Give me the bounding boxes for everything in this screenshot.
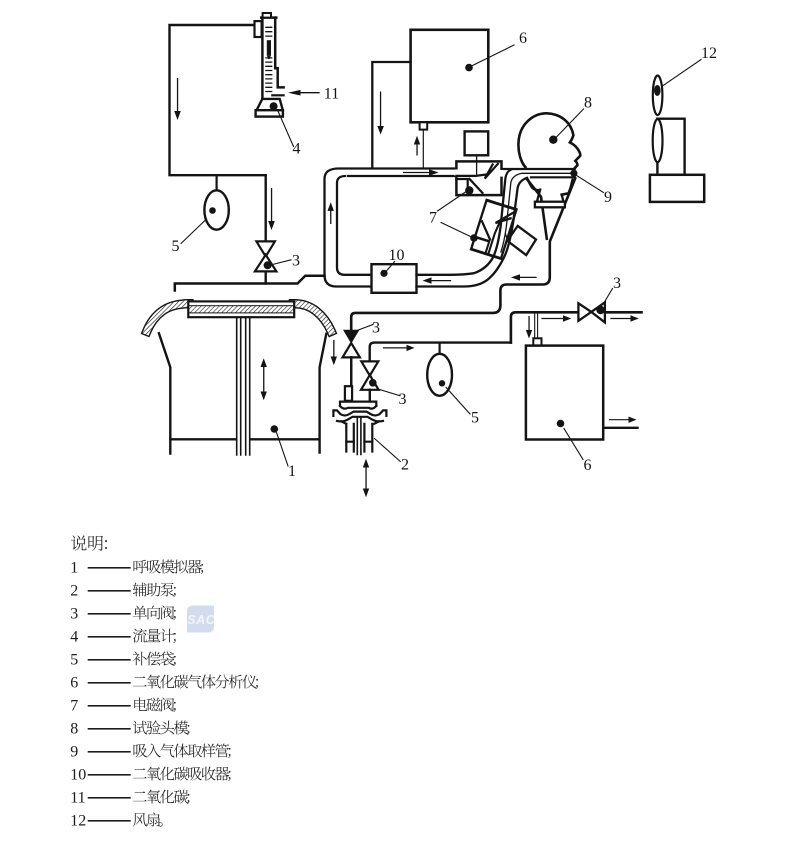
- svg-text:3: 3: [613, 275, 621, 292]
- svg-text:2: 2: [70, 582, 78, 599]
- svg-text:11: 11: [70, 789, 85, 806]
- svg-text:SAC: SAC: [187, 613, 216, 627]
- svg-text:9: 9: [604, 189, 612, 206]
- svg-text:3: 3: [372, 320, 380, 337]
- svg-text:9: 9: [70, 743, 78, 760]
- svg-text:12: 12: [701, 45, 717, 62]
- svg-text:5: 5: [70, 651, 78, 668]
- svg-text:10: 10: [389, 247, 405, 264]
- svg-text:3: 3: [70, 605, 78, 622]
- svg-text:7: 7: [70, 697, 78, 714]
- svg-text:2: 2: [401, 457, 409, 474]
- svg-text:7: 7: [429, 210, 437, 227]
- svg-text:8: 8: [70, 720, 78, 737]
- svg-text:5: 5: [172, 238, 180, 255]
- svg-text:6: 6: [70, 674, 78, 691]
- svg-text:4: 4: [293, 141, 301, 158]
- svg-text:1: 1: [70, 559, 78, 576]
- svg-text:1: 1: [288, 463, 296, 480]
- svg-text:4: 4: [70, 628, 78, 645]
- svg-text:11: 11: [324, 86, 339, 103]
- svg-text:10: 10: [70, 766, 86, 783]
- svg-text:3: 3: [292, 253, 300, 270]
- svg-text:8: 8: [584, 95, 592, 112]
- svg-text:5: 5: [471, 410, 479, 427]
- svg-text:6: 6: [584, 457, 592, 474]
- svg-text:12: 12: [70, 812, 86, 829]
- svg-text:6: 6: [519, 30, 527, 47]
- svg-text:3: 3: [399, 391, 407, 408]
